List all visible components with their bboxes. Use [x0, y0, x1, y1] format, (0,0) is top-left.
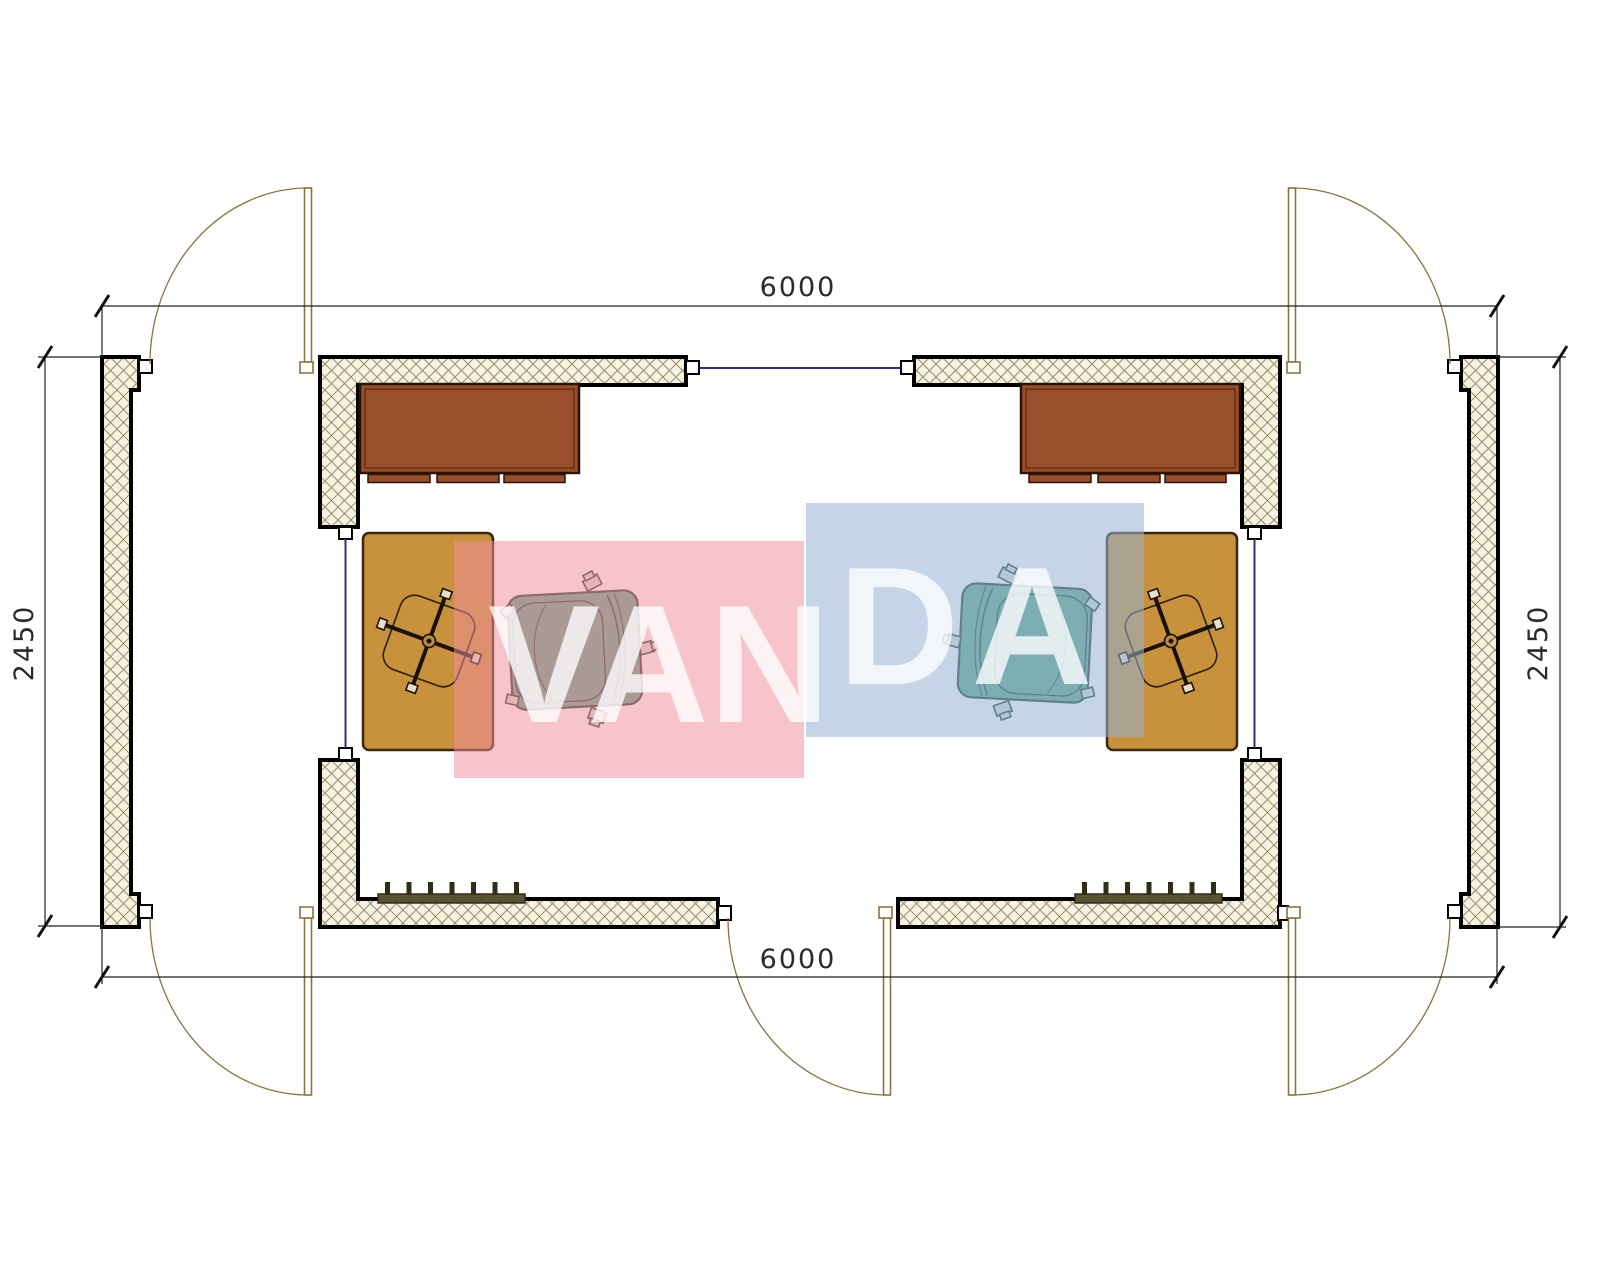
watermark-text-van: VAN [488, 570, 830, 758]
radiator-left [378, 882, 525, 903]
door-leaf-bottom-left [305, 918, 312, 1095]
door-arc-bottom-left [150, 918, 308, 1095]
door-arc-top-right [1292, 188, 1450, 364]
desk-left [360, 384, 579, 483]
dimension-label-right: 2450 [1523, 605, 1554, 682]
watermark-text-da: DA [838, 532, 1105, 720]
wall-east [1461, 357, 1498, 927]
wall-west [102, 357, 139, 927]
floor-plan-page: 6000 6000 2450 2450 VAN DA [0, 0, 1600, 1280]
dimension-label-left: 2450 [9, 605, 40, 682]
door-leaf-bottom-right [1289, 918, 1296, 1095]
door-leaf-top-right [1289, 188, 1296, 362]
floor-plan-drawing: 6000 6000 2450 2450 VAN DA [0, 0, 1600, 1280]
watermark: VAN DA [454, 503, 1144, 778]
dimension-label-top: 6000 [760, 272, 837, 303]
radiator-right [1075, 882, 1222, 903]
door-leaf-bottom-middle [884, 918, 891, 1095]
door-arc-bottom-right [1292, 918, 1450, 1095]
desk-right [1021, 384, 1240, 483]
door-leaf-top-left [305, 188, 312, 362]
dimension-label-bottom: 6000 [760, 944, 837, 975]
door-arc-top-left [150, 188, 308, 364]
